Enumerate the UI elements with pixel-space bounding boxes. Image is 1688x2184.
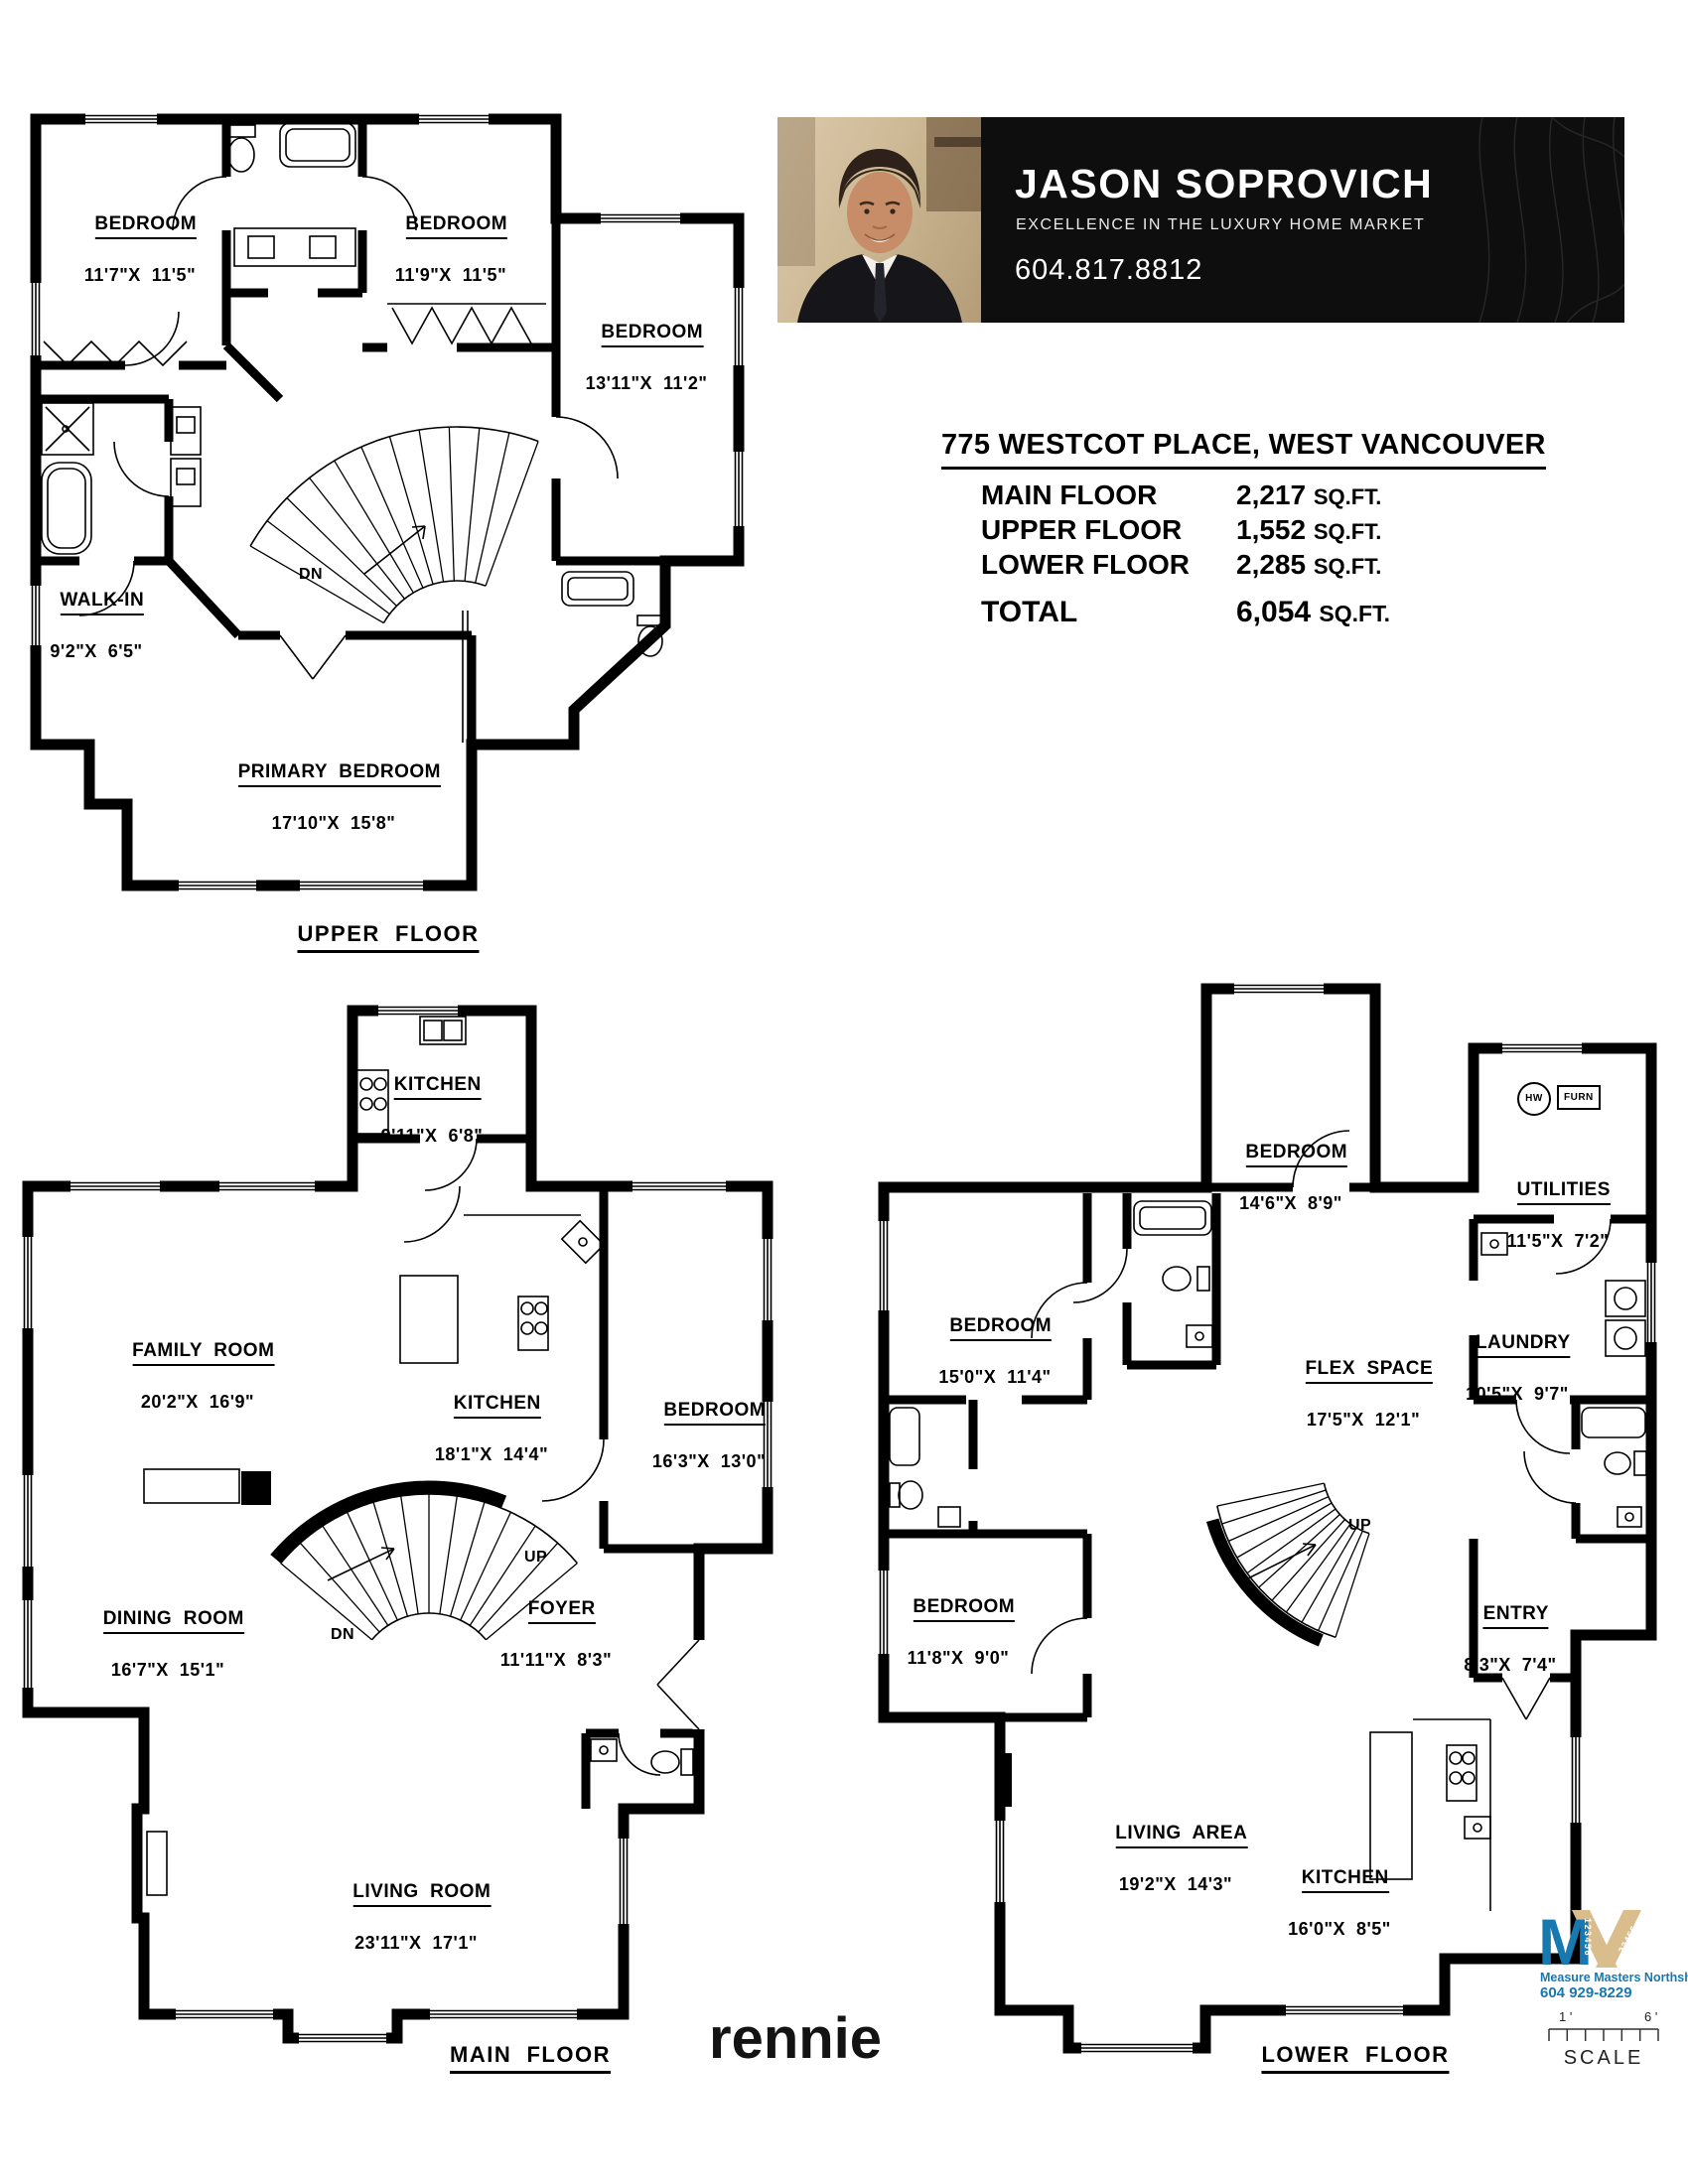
area-row-upper: UPPER FLOOR: [981, 514, 1182, 546]
area-value-main: 2,217 SQ.FT.: [1236, 479, 1381, 511]
kitchen-sink-icon: [1465, 1817, 1490, 1839]
room-label-dining-room: DINING ROOM 16'7"X 15'1": [91, 1586, 244, 1680]
laundry-sink-icon: [1481, 1233, 1507, 1255]
toilet-icon: [227, 125, 255, 137]
rennie-logo: rennie: [709, 2005, 882, 2072]
agent-tagline: EXCELLENCE IN THE LUXURY HOME MARKET: [1016, 216, 1425, 234]
agent-portrait-illustration: [777, 117, 981, 323]
room-label-lower-bedroom-1: BEDROOM 14'6"X 8'9": [1234, 1120, 1347, 1213]
room-label-main-bedroom: BEDROOM 16'3"X 13'0": [652, 1378, 766, 1471]
surveyor-phone: 604 929-8229: [1540, 1984, 1632, 2001]
agent-headshot-photo: [777, 117, 981, 323]
upper-floor-caption: UPPER FLOOR: [297, 921, 479, 953]
room-label-lower-bedroom-3: BEDROOM 11'8"X 9'0": [902, 1574, 1015, 1668]
area-label: LOWER FLOOR: [981, 549, 1190, 580]
room-label-upper-bedroom-3: BEDROOM 13'11"X 11'2": [586, 300, 708, 393]
room-label-walk-in: WALK-IN 9'2"X 6'5": [49, 568, 144, 661]
ensuite-tub-icon: [562, 572, 633, 606]
stair-direction-dn: DN: [299, 566, 323, 584]
agent-banner: JASON SOPROVICH EXCELLENCE IN THE LUXURY…: [981, 117, 1624, 323]
room-label-entry: ENTRY 8'3"X 7'4": [1464, 1581, 1556, 1675]
room-label-flex-space: FLEX SPACE 17'5"X 12'1": [1294, 1336, 1433, 1430]
washer-icon: [1606, 1281, 1645, 1316]
room-label-upper-bedroom-1: BEDROOM 11'7"X 11'5": [83, 192, 197, 285]
double-vanity-icon: [234, 228, 355, 266]
powder-toilet-icon: [651, 1751, 679, 1773]
room-label-foyer: FOYER 11'11"X 8'3": [500, 1576, 612, 1670]
powder-sink-icon: [591, 1739, 617, 1761]
bathtub-icon: [1582, 1408, 1645, 1437]
main-floor-fixtures: [144, 1017, 693, 1895]
toilet-icon: [1605, 1452, 1630, 1474]
bench-icon: [144, 1469, 239, 1503]
area-row-main: MAIN FLOOR: [981, 479, 1157, 511]
agent-phone: 604.817.8812: [1015, 254, 1202, 287]
room-label-main-kitchen: KITCHEN 18'1"X 14'4": [435, 1371, 548, 1464]
kitchen-island-icon: [400, 1276, 458, 1363]
stair-direction-dn: DN: [331, 1626, 354, 1644]
scale-tick-left: 1 ': [1559, 2009, 1572, 2024]
area-value-total: 6,054 SQ.FT.: [1236, 596, 1390, 629]
floorplan-sheet: { "banner": { "name": "JASON SOPROVICH",…: [0, 0, 1688, 2184]
entry-door-icon: [1502, 1678, 1550, 1719]
vanity-icon: [171, 407, 201, 455]
area-label: MAIN FLOOR: [981, 479, 1157, 510]
room-label-primary-bedroom: PRIMARY BEDROOM 17'10"X 15'8": [226, 740, 441, 833]
bathtub-icon: [890, 1408, 919, 1465]
dryer-icon: [1606, 1320, 1645, 1356]
furnace-icon: FURN: [1557, 1085, 1601, 1110]
room-label-lower-kitchen: KITCHEN 16'0"X 8'5": [1288, 1845, 1391, 1939]
area-label: UPPER FLOOR: [981, 514, 1182, 545]
toilet-icon: [1163, 1267, 1191, 1291]
room-label-utilities: UTILITIES 11'5"X 7'2": [1505, 1158, 1611, 1251]
room-label-living-area: LIVING AREA 19'2"X 14'3": [1104, 1801, 1248, 1894]
corner-sink-icon: [562, 1221, 604, 1263]
room-label-lower-bedroom-2: BEDROOM 15'0"X 11'4": [938, 1294, 1052, 1387]
svg-text:123456: 123456: [1583, 1918, 1593, 1957]
surveyor-company: Measure Masters Northshore: [1540, 1971, 1688, 1984]
upper-floor-closets: [44, 304, 546, 365]
sink-icon: [1187, 1325, 1212, 1347]
fireplace-icon: [147, 1832, 167, 1895]
area-row-lower: LOWER FLOOR: [981, 549, 1190, 581]
room-label-living-room: LIVING ROOM 23'11"X 17'1": [342, 1859, 492, 1953]
stair-arrow: [328, 1548, 394, 1580]
room-label-upper-bedroom-2: BEDROOM 11'9"X 11'5": [394, 192, 507, 285]
curved-staircase-icon: [1212, 1483, 1369, 1640]
svg-text:M: M: [1538, 1908, 1589, 1970]
curved-staircase-icon: [250, 427, 538, 622]
lower-floor-caption: LOWER FLOOR: [1261, 2042, 1449, 2074]
sink-icon: [1618, 1507, 1641, 1527]
bathtub-icon: [1134, 1201, 1211, 1235]
scale-label: SCALE: [1564, 2047, 1644, 2070]
room-label-family-room: FAMILY ROOM 20'2"X 16'9": [121, 1318, 275, 1412]
area-value-upper: 1,552 SQ.FT.: [1236, 514, 1381, 546]
scale-tick-right: 6 ': [1644, 2009, 1657, 2024]
main-floor-caption: MAIN FLOOR: [450, 2042, 611, 2074]
property-address: 775 WESTCOT PLACE, WEST VANCOUVER: [941, 429, 1546, 470]
stair-arrow: [1248, 1544, 1316, 1578]
toilet-icon: [899, 1481, 922, 1509]
measure-masters-logo: 23456 M 123456: [1538, 1908, 1647, 1970]
room-label-laundry: LAUNDRY 10'5"X 9'7": [1464, 1310, 1570, 1404]
room-label-wok-kitchen: KITCHEN 9'11"X 6'8": [381, 1052, 484, 1146]
area-value-lower: 2,285 SQ.FT.: [1236, 549, 1381, 581]
stair-direction-up: UP: [524, 1549, 547, 1567]
agent-name: JASON SOPROVICH: [1015, 161, 1433, 207]
hot-water-tank-icon: HW: [1517, 1082, 1551, 1116]
area-row-total: TOTAL: [981, 596, 1077, 629]
stair-direction-up: UP: [1348, 1517, 1371, 1535]
sink-icon: [938, 1507, 960, 1527]
